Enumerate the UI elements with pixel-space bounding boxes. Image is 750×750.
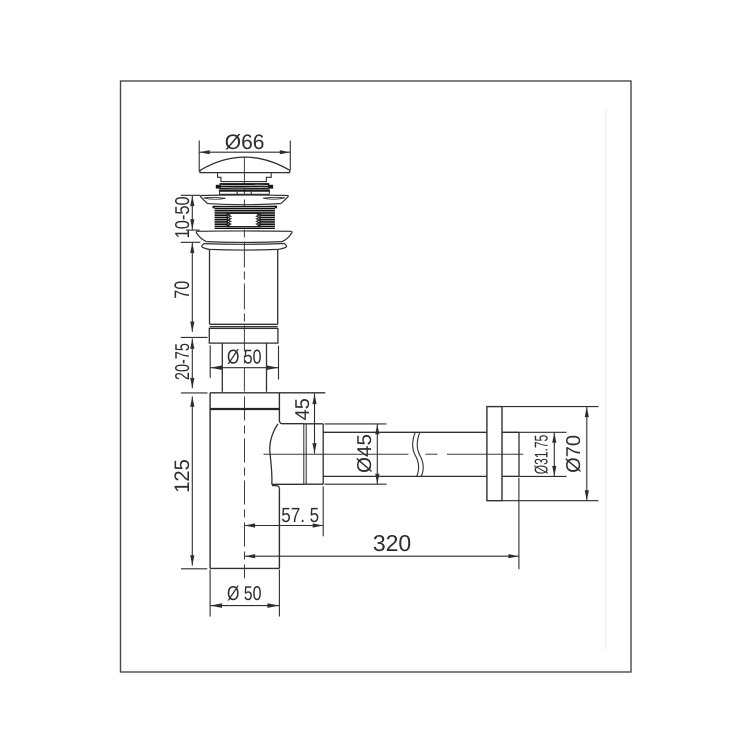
svg-text:Ø31.75: Ø31.75 [531, 435, 552, 475]
svg-text:320: 320 [373, 530, 411, 556]
svg-text:57. 5: 57. 5 [281, 504, 319, 527]
svg-text:Ø45: Ø45 [354, 434, 376, 473]
svg-text:Ø66: Ø66 [225, 131, 265, 154]
svg-text:125: 125 [171, 459, 194, 493]
svg-text:Ø 50: Ø 50 [227, 583, 262, 605]
svg-text:70: 70 [171, 281, 194, 299]
svg-text:Ø 50: Ø 50 [227, 347, 262, 369]
svg-text:10-50: 10-50 [172, 196, 194, 238]
svg-text:45: 45 [292, 398, 314, 420]
svg-text:Ø70: Ø70 [563, 435, 585, 473]
svg-text:20-75: 20-75 [172, 343, 194, 380]
